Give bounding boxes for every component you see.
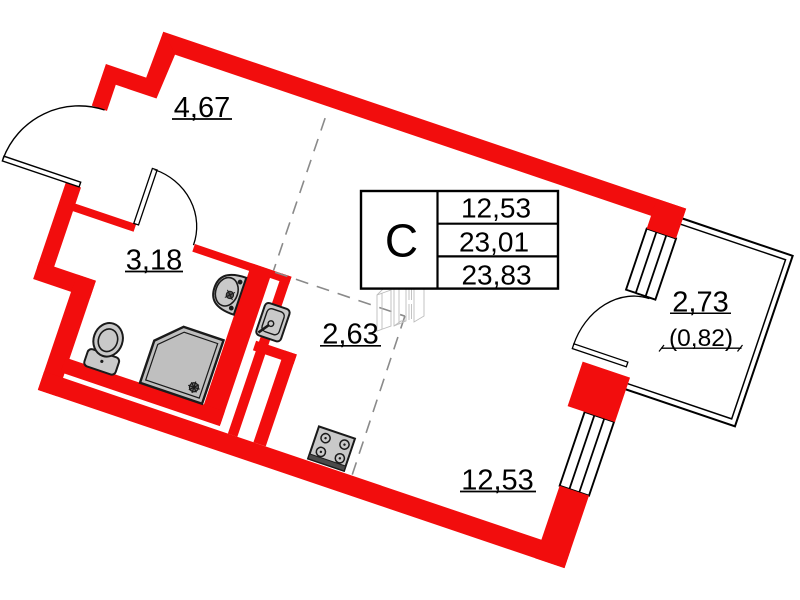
svg-text:23,83: 23,83 (461, 260, 531, 291)
svg-text:С: С (385, 215, 418, 267)
svg-text:23,01: 23,01 (459, 227, 529, 258)
svg-text:12,53: 12,53 (461, 193, 531, 224)
